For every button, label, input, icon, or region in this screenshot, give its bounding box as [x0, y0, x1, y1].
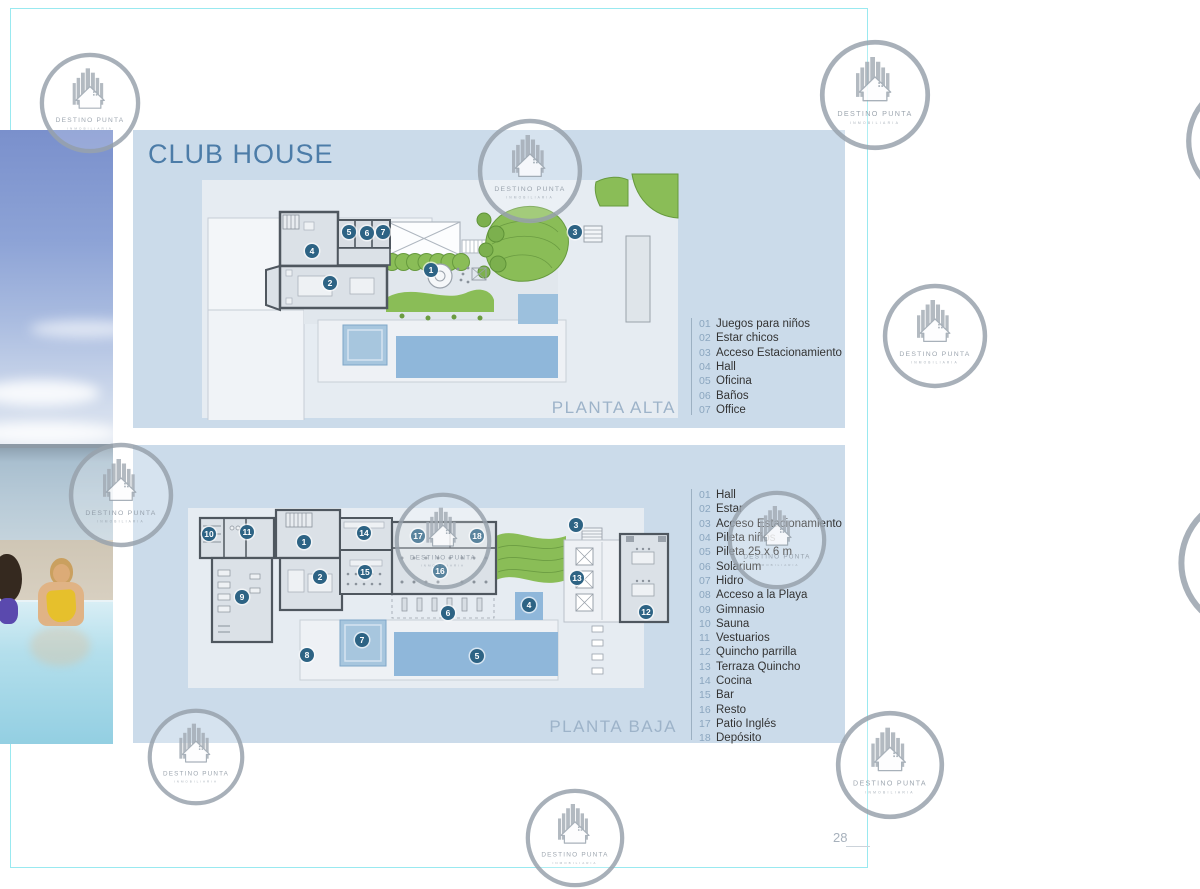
buildings-icon: [856, 57, 889, 97]
watermark-subtitle: INMOBILIARIA: [553, 861, 598, 865]
legend-item: 15Bar: [699, 688, 842, 702]
plan-marker-11: 11: [240, 525, 254, 539]
legend-item: 01Juegos para niños: [699, 317, 842, 331]
house-icon: [875, 747, 906, 770]
legend-item: 03Acceso Estacionamiento: [699, 517, 842, 531]
house-icon: [182, 741, 210, 762]
legend-item: 17Patio Inglés: [699, 717, 842, 731]
legend-item-label: Sauna: [716, 618, 749, 630]
destino-punta-watermark-logo: DESTINO PUNTA INMOBILIARIA: [834, 709, 946, 821]
legend-item-number: 02: [699, 503, 716, 515]
legend-item-number: 09: [699, 604, 716, 616]
legend-item: 10Sauna: [699, 617, 842, 631]
legend-item-label: Bar: [716, 689, 734, 701]
legend-item: 06Baños: [699, 388, 842, 402]
legend-item-number: 13: [699, 661, 716, 673]
watermark-subtitle: INMOBILIARIA: [865, 790, 914, 794]
legend-item: 03Acceso Estacionamiento: [699, 346, 842, 360]
legend-item-label: Pileta niños: [716, 532, 775, 544]
legend-planta-alta: 01Juegos para niños02Estar chicos03Acces…: [699, 317, 842, 417]
legend-item-number: 04: [699, 361, 716, 373]
plan-marker-10: 10: [202, 527, 216, 541]
legend-item-number: 18: [699, 732, 716, 744]
house-icon: [76, 87, 105, 109]
plan-marker-5: 5: [470, 649, 484, 663]
planta-baja-label: PLANTA BAJA: [549, 717, 677, 737]
legend-item-label: Quincho parrilla: [716, 646, 797, 658]
legend-item-label: Hidro: [716, 575, 743, 587]
legend-item: 02Estar: [699, 502, 842, 516]
legend-separator-baja: [691, 489, 692, 740]
plan-marker-4: 4: [305, 244, 319, 258]
legend-item-number: 11: [699, 632, 716, 644]
legend-item: 09Gimnasio: [699, 602, 842, 616]
page-title: CLUB HOUSE: [148, 139, 334, 170]
legend-item: 01Hall: [699, 488, 842, 502]
legend-item-label: Acceso Estacionamiento: [716, 518, 842, 530]
legend-item: 11Vestuarios: [699, 631, 842, 645]
destino-punta-watermark: DESTINO PUNTA INMOBILIARIA: [1184, 78, 1200, 204]
markers-planta-alta: 1234567: [200, 170, 680, 420]
plan-marker-18: 18: [470, 529, 484, 543]
legend-item-number: 12: [699, 646, 716, 658]
plan-marker-1: 1: [297, 535, 311, 549]
plan-marker-2: 2: [313, 570, 327, 584]
legend-item-number: 02: [699, 332, 716, 344]
legend-item-label: Patio Inglés: [716, 718, 776, 730]
buildings-icon: [73, 68, 104, 104]
destino-punta-watermark-logo: DESTINO PUNTA INMOBILIARIA: [1184, 78, 1200, 204]
destino-punta-watermark-logo: DESTINO PUNTA INMOBILIARIA: [1176, 491, 1200, 635]
legend-item: 07Office: [699, 403, 842, 417]
legend-item: 14Cocina: [699, 674, 842, 688]
plan-marker-6: 6: [360, 226, 374, 240]
legend-item-number: 06: [699, 390, 716, 402]
watermark-name: DESTINO PUNTA: [853, 780, 927, 788]
plan-marker-2: 2: [323, 276, 337, 290]
legend-item: 04Pileta niños: [699, 531, 842, 545]
legend-item-number: 06: [699, 561, 716, 573]
pool-photo: [0, 130, 113, 744]
watermark-name: DESTINO PUNTA: [899, 351, 970, 358]
page-number: 28: [833, 830, 847, 845]
legend-item: 16Resto: [699, 702, 842, 716]
watermark-name: DESTINO PUNTA: [837, 109, 912, 118]
legend-item: 08Acceso a la Playa: [699, 588, 842, 602]
house-icon: [561, 822, 589, 843]
legend-item-label: Pileta 25 x 6 m: [716, 546, 792, 558]
plan-marker-8: 8: [300, 648, 314, 662]
plan-marker-14: 14: [357, 526, 371, 540]
legend-item-number: 17: [699, 718, 716, 730]
buildings-icon: [917, 300, 949, 338]
destino-punta-watermark-logo: DESTINO PUNTA INMOBILIARIA: [881, 282, 989, 390]
legend-item-label: Vestuarios: [716, 632, 770, 644]
legend-item: 04Hall: [699, 360, 842, 374]
plan-marker-12: 12: [639, 605, 653, 619]
plan-marker-13: 13: [570, 571, 584, 585]
photo-sea: [0, 448, 113, 540]
legend-item-number: 15: [699, 689, 716, 701]
legend-item-number: 08: [699, 589, 716, 601]
legend-item-number: 03: [699, 518, 716, 530]
destino-punta-watermark: DESTINO PUNTA INMOBILIARIA: [1176, 491, 1200, 635]
legend-item-number: 03: [699, 347, 716, 359]
plan-marker-6: 6: [441, 606, 455, 620]
legend-item: 02Estar chicos: [699, 331, 842, 345]
legend-item-label: Juegos para niños: [716, 318, 810, 330]
legend-item-label: Acceso Estacionamiento: [716, 347, 842, 359]
plan-marker-1: 1: [424, 263, 438, 277]
legend-item-label: Office: [716, 404, 746, 416]
legend-item-number: 07: [699, 404, 716, 416]
legend-item-label: Baños: [716, 390, 749, 402]
plan-marker-16: 16: [433, 564, 447, 578]
watermark-name: DESTINO PUNTA: [541, 852, 608, 859]
buildings-icon: [558, 804, 588, 840]
legend-item: 12Quincho parrilla: [699, 645, 842, 659]
legend-item-label: Estar chicos: [716, 332, 779, 344]
legend-item-number: 05: [699, 375, 716, 387]
legend-item-label: Estar: [716, 503, 743, 515]
legend-item-label: Gimnasio: [716, 604, 765, 616]
plan-marker-3: 3: [568, 225, 582, 239]
legend-item: 07Hidro: [699, 574, 842, 588]
legend-item-label: Acceso a la Playa: [716, 589, 807, 601]
person-purple-swimsuit: [0, 598, 18, 624]
plan-marker-15: 15: [358, 565, 372, 579]
legend-item: 13Terraza Quincho: [699, 660, 842, 674]
buildings-icon: [871, 728, 904, 767]
legend-item-number: 04: [699, 532, 716, 544]
legend-item: 05Oficina: [699, 374, 842, 388]
legend-item-label: Terraza Quincho: [716, 661, 800, 673]
brochure-page: { "page": { "title": "CLUB HOUSE", "numb…: [0, 0, 1200, 874]
house-icon: [920, 319, 950, 342]
markers-planta-baja: 123456789101112131415161718: [188, 492, 688, 697]
legend-item-number: 16: [699, 704, 716, 716]
legend-item-label: Cocina: [716, 675, 752, 687]
legend-separator-alta: [691, 318, 692, 415]
plan-marker-5: 5: [342, 225, 356, 239]
watermark-subtitle: INMOBILIARIA: [911, 360, 959, 364]
plan-marker-4: 4: [522, 598, 536, 612]
legend-item-label: Solarium: [716, 561, 761, 573]
watermark-name: DESTINO PUNTA: [163, 770, 229, 777]
plan-marker-9: 9: [235, 590, 249, 604]
legend-planta-baja: 01Hall02Estar03Acceso Estacionamiento04P…: [699, 488, 842, 745]
legend-item: 06Solarium: [699, 559, 842, 573]
plan-marker-17: 17: [411, 529, 425, 543]
watermark-name: DESTINO PUNTA: [56, 117, 125, 124]
legend-item-label: Hall: [716, 361, 736, 373]
legend-item-number: 07: [699, 575, 716, 587]
legend-item: 18Depósito: [699, 731, 842, 745]
legend-item-label: Resto: [716, 704, 746, 716]
legend-item: 05Pileta 25 x 6 m: [699, 545, 842, 559]
plan-marker-7: 7: [355, 633, 369, 647]
destino-punta-watermark: DESTINO PUNTA INMOBILIARIA: [834, 709, 946, 821]
legend-item-label: Depósito: [716, 732, 761, 744]
destino-punta-watermark: DESTINO PUNTA INMOBILIARIA: [881, 282, 989, 390]
legend-item-number: 14: [699, 675, 716, 687]
plan-marker-3: 3: [569, 518, 583, 532]
person-blonde-face: [53, 564, 70, 583]
water-reflection: [30, 626, 90, 666]
house-icon: [859, 77, 890, 101]
legend-item-number: 01: [699, 489, 716, 501]
legend-item-label: Oficina: [716, 375, 752, 387]
legend-item-number: 05: [699, 546, 716, 558]
legend-item-number: 10: [699, 618, 716, 630]
legend-item-label: Hall: [716, 489, 736, 501]
page-number-underline: [846, 846, 870, 847]
watermark-subtitle: INMOBILIARIA: [850, 121, 900, 125]
legend-item-number: 01: [699, 318, 716, 330]
watermark-subtitle: INMOBILIARIA: [174, 779, 218, 783]
plan-marker-7: 7: [376, 225, 390, 239]
